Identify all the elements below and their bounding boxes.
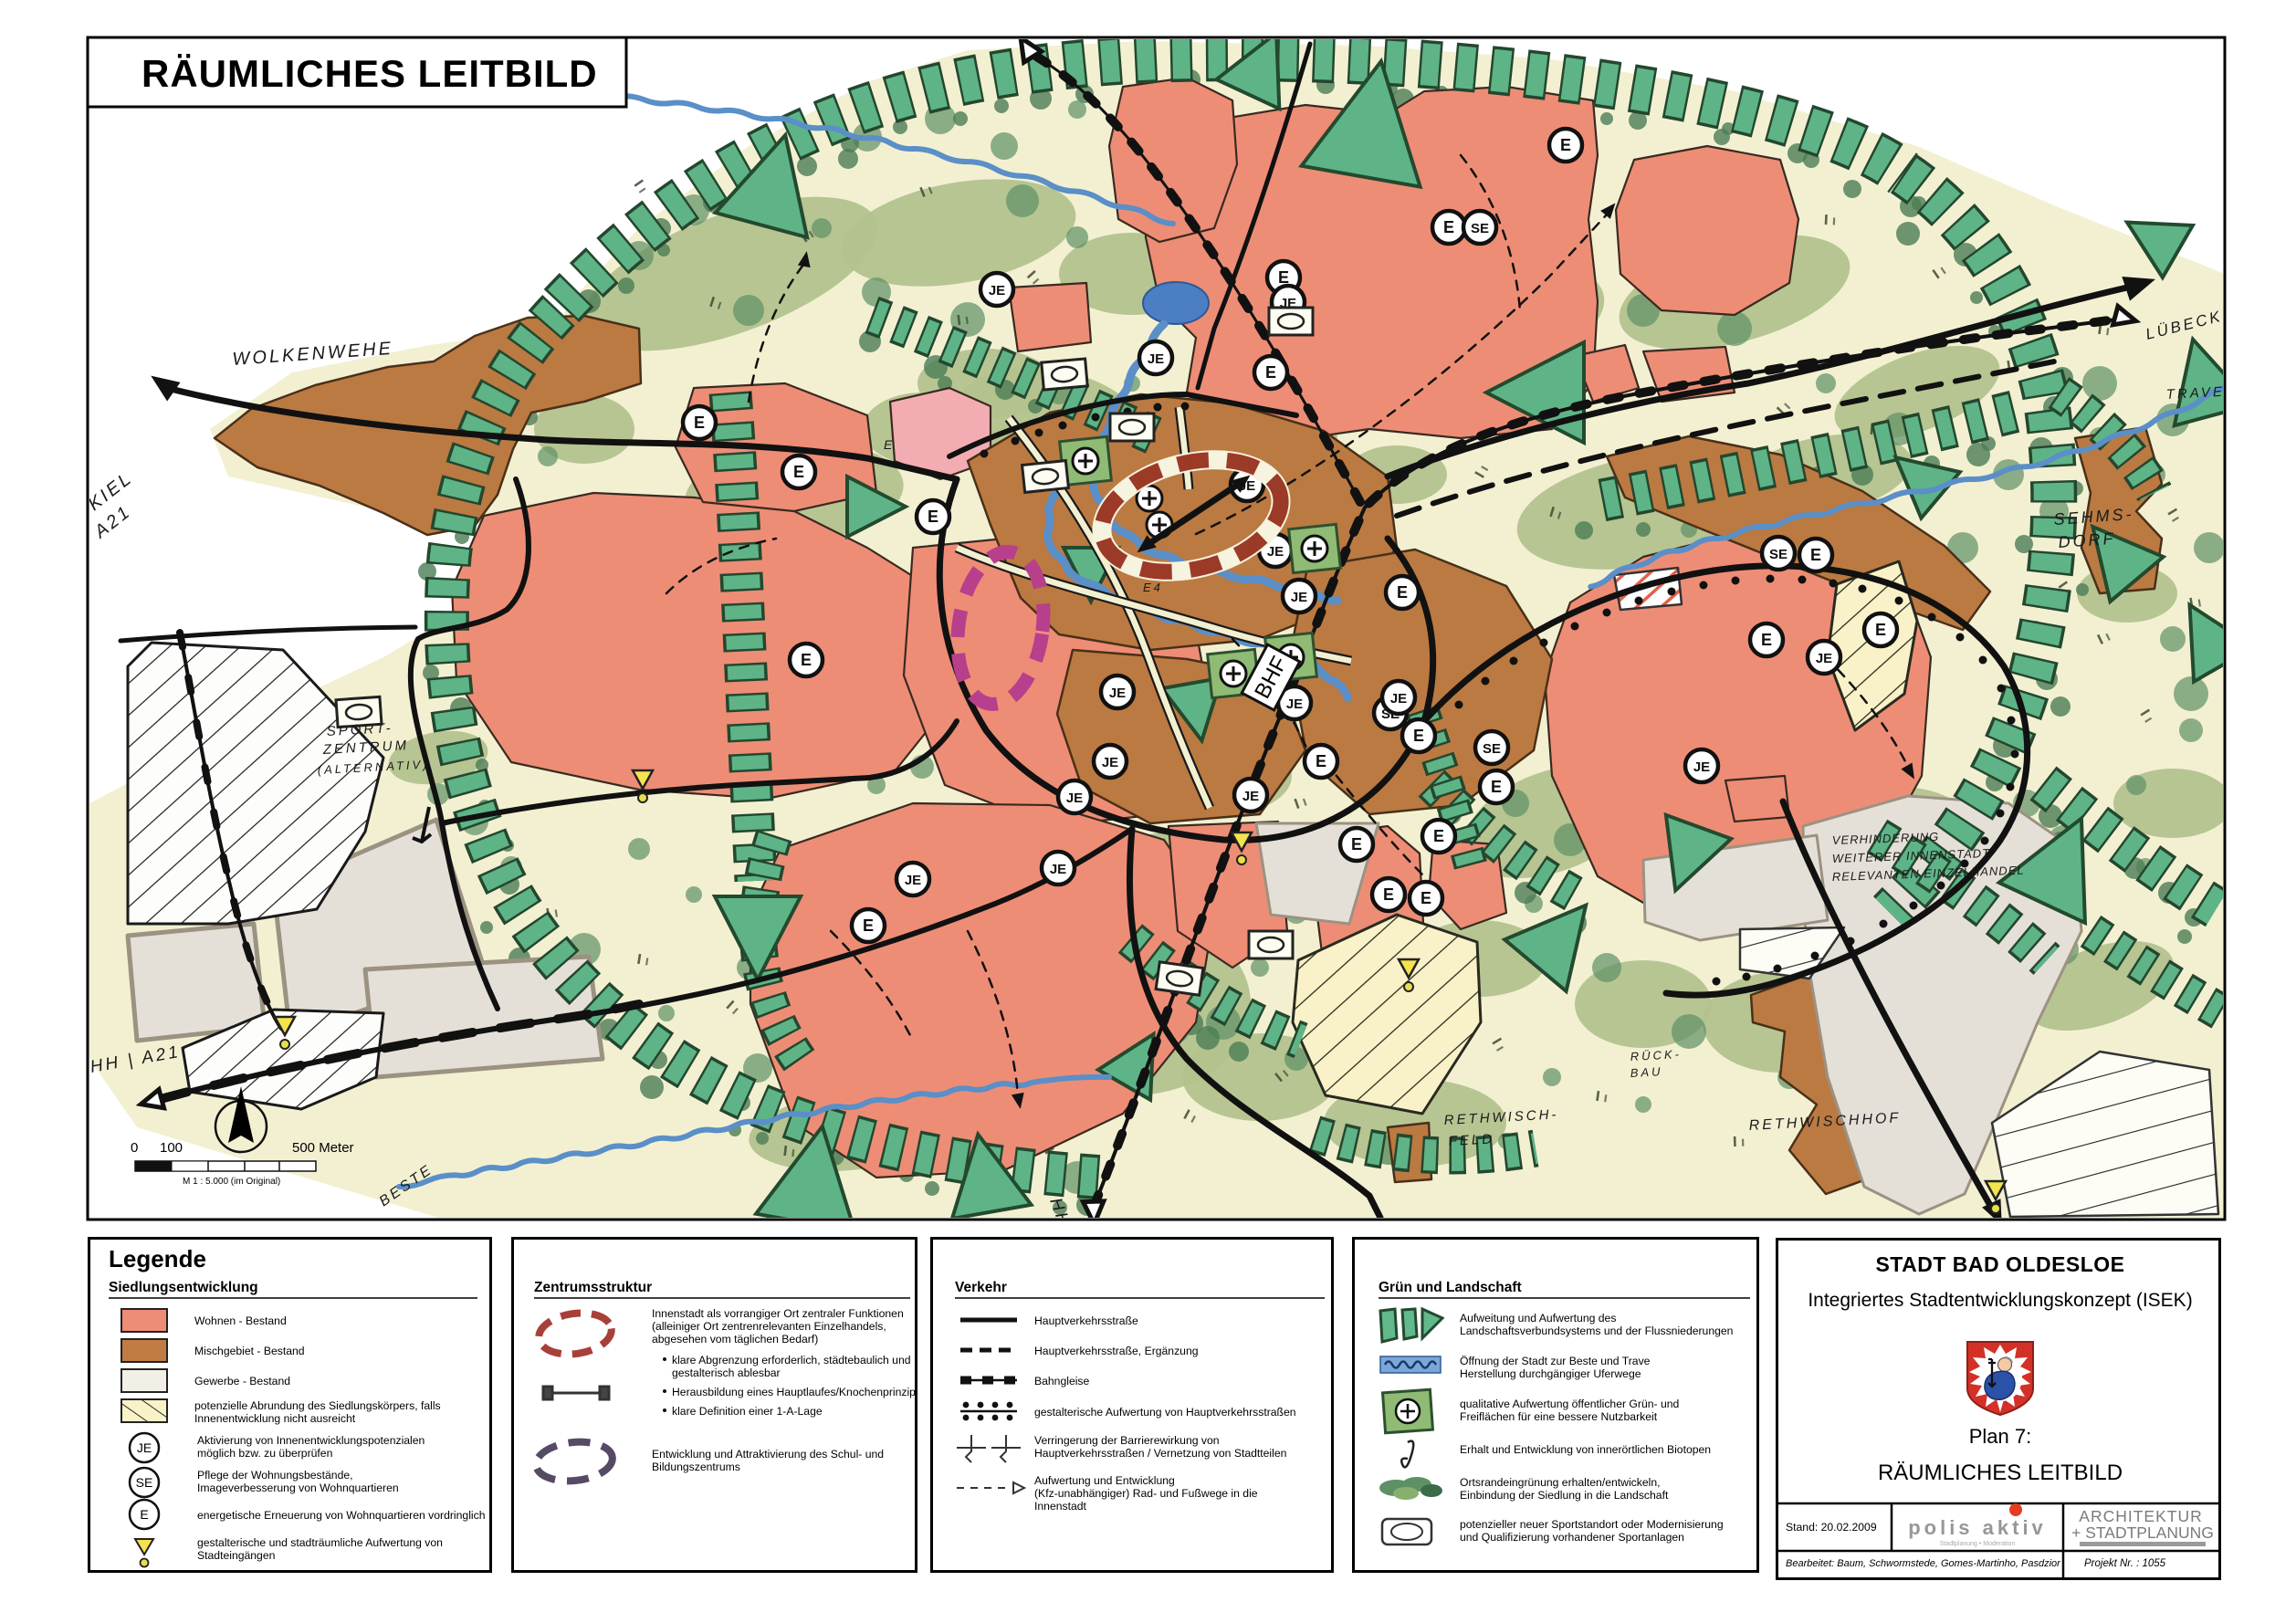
svg-text:möglich bzw. zu überprüfen: möglich bzw. zu überprüfen — [197, 1447, 332, 1460]
svg-text:E: E — [1875, 621, 1886, 639]
svg-text:qualitative Aufwertung öffentl: qualitative Aufwertung öffentlicher Grün… — [1460, 1398, 1679, 1410]
svg-text:E: E — [1265, 363, 1276, 382]
svg-text:RÜCK-: RÜCK- — [1630, 1047, 1682, 1063]
svg-text:Herausbildung eines Hauptlaufe: Herausbildung eines Hauptlaufes/Knochenp… — [672, 1386, 916, 1398]
svg-text:Stadteingängen: Stadteingängen — [197, 1549, 275, 1562]
svg-text:M 1 : 5.000 (im Original): M 1 : 5.000 (im Original) — [183, 1177, 280, 1187]
svg-text:JE: JE — [1148, 351, 1164, 367]
svg-text:JE: JE — [1816, 651, 1832, 666]
svg-text:JE: JE — [1291, 590, 1307, 605]
svg-text:SE: SE — [1483, 741, 1501, 757]
svg-text:E: E — [694, 414, 705, 432]
svg-text:E: E — [1443, 218, 1454, 236]
svg-text:JE: JE — [1242, 789, 1259, 804]
svg-text:SE: SE — [1471, 221, 1489, 236]
svg-text:gestalterisch ablesbar: gestalterisch ablesbar — [672, 1366, 781, 1379]
svg-text:Grün und Landschaft: Grün und Landschaft — [1379, 1280, 1522, 1295]
svg-text:E: E — [801, 651, 812, 669]
svg-text:E: E — [1383, 885, 1394, 904]
svg-text:TRAVE: TRAVE — [2165, 384, 2225, 403]
svg-text:E: E — [1413, 727, 1424, 745]
svg-text:Innenstadt: Innenstadt — [1034, 1500, 1087, 1513]
svg-text:polis aktiv: polis aktiv — [1908, 1516, 2047, 1539]
svg-text:E: E — [1433, 827, 1444, 845]
svg-text:JE: JE — [1109, 686, 1126, 701]
svg-text:E: E — [1397, 583, 1408, 602]
svg-text:100: 100 — [160, 1140, 183, 1156]
svg-text:ARCHITEKTUR: ARCHITEKTUR — [2079, 1507, 2202, 1525]
svg-text:Bearbeitet: Baum, Schwormsted: Bearbeitet: Baum, Schwormstede, Gomes-Ma… — [1786, 1558, 2061, 1569]
svg-text:Bahngleise: Bahngleise — [1034, 1375, 1090, 1387]
svg-text:E: E — [1810, 546, 1821, 564]
svg-text:FELD: FELD — [1448, 1131, 1494, 1149]
svg-text:Innenentwicklung nicht ausreic: Innenentwicklung nicht ausreicht — [194, 1412, 356, 1425]
svg-text:E: E — [1491, 778, 1502, 796]
svg-text:Siedlungsentwicklung: Siedlungsentwicklung — [109, 1280, 258, 1295]
svg-text:Pflege der Wohnungsbestände,: Pflege der Wohnungsbestände, — [197, 1469, 353, 1482]
svg-text:RÄUMLICHES LEITBILD: RÄUMLICHES LEITBILD — [142, 52, 598, 95]
svg-text:Verringerung der Barrierewirku: Verringerung der Barrierewirkung von — [1034, 1434, 1220, 1447]
svg-text:klare Definition einer 1-A-Lag: klare Definition einer 1-A-Lage — [672, 1405, 823, 1418]
svg-text:und Qualifizierung vorhandener: und Qualifizierung vorhandener Sportanla… — [1460, 1531, 1684, 1544]
svg-text:potenzieller neuer Sportstando: potenzieller neuer Sportstandort oder Mo… — [1460, 1518, 1724, 1531]
svg-text:Hauptverkehrsstraße: Hauptverkehrsstraße — [1034, 1314, 1138, 1327]
svg-text:JE: JE — [1286, 696, 1303, 712]
svg-text:JE: JE — [1267, 544, 1284, 560]
svg-text:Einbindung der Siedlung in die: Einbindung der Siedlung in die Landschaf… — [1460, 1489, 1669, 1502]
svg-text:KIEL: KIEL — [85, 468, 137, 515]
svg-text:E: E — [884, 437, 895, 452]
svg-text:Wohnen - Bestand: Wohnen - Bestand — [194, 1314, 287, 1327]
svg-text:E: E — [1560, 136, 1571, 154]
svg-text:JE: JE — [989, 283, 1005, 298]
svg-text:Stadtplanung • Moderation: Stadtplanung • Moderation — [1940, 1541, 2016, 1547]
svg-text:Hauptverkehrsstraße, Ergänzung: Hauptverkehrsstraße, Ergänzung — [1034, 1345, 1199, 1357]
svg-text:E: E — [1761, 631, 1772, 649]
svg-text:Plan 7:: Plan 7: — [1969, 1425, 2032, 1448]
svg-text:Bildungszentrums: Bildungszentrums — [652, 1461, 740, 1473]
svg-text:Landschaftsverbundsystems und: Landschaftsverbundsystems und der Flussn… — [1460, 1325, 1733, 1337]
svg-text:E: E — [793, 463, 804, 481]
svg-text:BAU: BAU — [1630, 1064, 1662, 1080]
svg-text:0: 0 — [131, 1140, 138, 1156]
svg-text:JE: JE — [137, 1440, 152, 1455]
svg-text:Freiflächen für eine bessere N: Freiflächen für eine bessere Nutzbarkeit — [1460, 1410, 1658, 1423]
svg-text:Aufweitung und Aufwertung des: Aufweitung und Aufwertung des — [1460, 1312, 1616, 1325]
svg-text:RÄUMLICHES LEITBILD: RÄUMLICHES LEITBILD — [1878, 1461, 2123, 1485]
svg-text:Gewerbe - Bestand: Gewerbe - Bestand — [194, 1375, 290, 1387]
svg-text:Hauptverkehrsstraßen / Vernetz: Hauptverkehrsstraßen / Vernetzung von St… — [1034, 1447, 1286, 1460]
svg-text:Imageverbesserung von Wohnquar: Imageverbesserung von Wohnquartieren — [197, 1482, 399, 1494]
svg-text:Verkehr: Verkehr — [955, 1280, 1007, 1295]
svg-text:JE: JE — [1390, 691, 1407, 707]
svg-text:abgesehen vom täglichen Bedarf: abgesehen vom täglichen Bedarf) — [652, 1333, 818, 1346]
svg-text:gestalterische und stadträumli: gestalterische und stadträumliche Aufwer… — [197, 1536, 443, 1549]
svg-text:Legende: Legende — [109, 1245, 206, 1272]
svg-text:E: E — [1316, 752, 1326, 770]
svg-text:Aktivierung von Innenentwicklu: Aktivierung von Innenentwicklungspotenzi… — [197, 1434, 425, 1447]
svg-text:E4: E4 — [1143, 581, 1163, 594]
svg-text:JE: JE — [1693, 759, 1710, 775]
svg-text:Integriertes Stadtentwicklungs: Integriertes Stadtentwicklungskonzept (I… — [1808, 1290, 2192, 1311]
svg-text:klare Abgrenzung erforderlich,: klare Abgrenzung erforderlich, städtebau… — [672, 1354, 911, 1366]
svg-text:Aufwertung und Entwicklung: Aufwertung und Entwicklung — [1034, 1474, 1175, 1487]
svg-text:Ortsrandeingrünung erhalten/en: Ortsrandeingrünung erhalten/entwickeln, — [1460, 1476, 1661, 1489]
svg-text:Projekt Nr. : 1055: Projekt Nr. : 1055 — [2084, 1558, 2166, 1569]
svg-text:JE: JE — [1066, 791, 1083, 806]
svg-text:Zentrumsstruktur: Zentrumsstruktur — [534, 1280, 652, 1295]
svg-text:Öffnung der Stadt zur Beste un: Öffnung der Stadt zur Beste und Trave — [1460, 1355, 1651, 1367]
svg-text:Stand: 20.02.2009: Stand: 20.02.2009 — [1786, 1521, 1877, 1534]
svg-text:E: E — [928, 508, 938, 526]
svg-text:(alleiniger Ort zentrenrelevan: (alleiniger Ort zentrenrelevanten Einzel… — [652, 1320, 886, 1333]
svg-text:JE: JE — [905, 873, 921, 888]
svg-text:JE: JE — [1102, 755, 1118, 770]
svg-text:Herstellung durchgängiger Ufer: Herstellung durchgängiger Uferwege — [1460, 1367, 1641, 1380]
svg-text:Innenstadt als vorrangiger Ort: Innenstadt als vorrangiger Ort zentraler… — [652, 1307, 904, 1320]
svg-text:SE: SE — [1769, 547, 1788, 562]
svg-text:SE: SE — [136, 1475, 153, 1490]
svg-text:E: E — [140, 1507, 148, 1522]
svg-text:STADT BAD OLDESLOE: STADT BAD OLDESLOE — [1875, 1252, 2124, 1276]
svg-text:potenzielle Abrundung des Sied: potenzielle Abrundung des Siedlungskörpe… — [194, 1399, 441, 1412]
svg-text:Mischgebiet - Bestand: Mischgebiet - Bestand — [194, 1345, 305, 1357]
svg-text:energetische Erneuerung von Wo: energetische Erneuerung von Wohnquartier… — [197, 1509, 486, 1522]
svg-text:+ STADTPLANUNG: + STADTPLANUNG — [2071, 1524, 2214, 1542]
svg-text:E: E — [1421, 889, 1431, 907]
svg-text:500 Meter: 500 Meter — [292, 1140, 354, 1156]
svg-text:gestalterische Aufwertung von: gestalterische Aufwertung von Hauptverke… — [1034, 1406, 1296, 1419]
svg-text:E: E — [863, 916, 874, 935]
svg-text:Entwicklung und Attraktivierun: Entwicklung und Attraktivierung des Schu… — [652, 1448, 884, 1461]
svg-text:JE: JE — [1050, 862, 1066, 877]
svg-text:E: E — [1351, 835, 1362, 853]
svg-text:Erhalt und Entwicklung von inn: Erhalt und Entwicklung von innerörtliche… — [1460, 1443, 1711, 1456]
svg-text:(Kfz-unabhängiger) Rad- und Fu: (Kfz-unabhängiger) Rad- und Fußwege in d… — [1034, 1487, 1258, 1500]
